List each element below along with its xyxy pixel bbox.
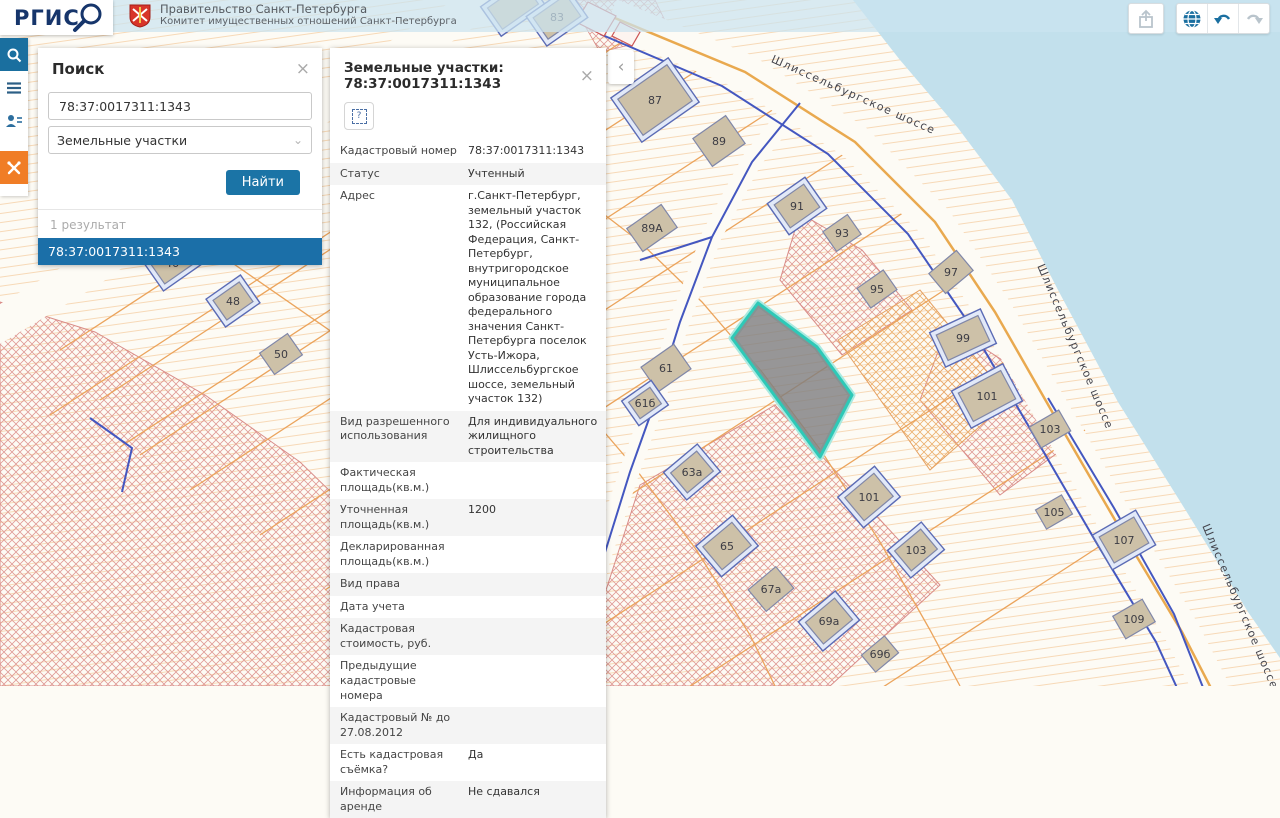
row-value: г.Санкт-Петербург, земельный участок 132… [464, 185, 606, 411]
row-value [464, 707, 606, 744]
globe-button[interactable] [1177, 4, 1207, 33]
building-number: 69а [819, 615, 840, 628]
results-count: 1 результат [38, 209, 322, 238]
panel-collapse-button[interactable]: ‹ [608, 50, 634, 84]
table-row: Информация об арендеНе сдавался [330, 781, 606, 818]
building-number: 103 [906, 544, 927, 557]
building-number: 63а [682, 466, 703, 479]
building-number: 95 [870, 283, 884, 296]
row-label: Кадастровая стоимость, руб. [330, 618, 464, 655]
table-row: Предыдущие кадастровые номера [330, 655, 606, 707]
row-label: Фактическая площадь(кв.м.) [330, 462, 464, 499]
row-value: 1200 [464, 499, 606, 536]
table-row: Кадастровая стоимость, руб. [330, 618, 606, 655]
row-label: Предыдущие кадастровые номера [330, 655, 464, 707]
row-value [464, 618, 606, 655]
row-label: Статус [330, 163, 464, 186]
building-number: 91 [790, 200, 804, 213]
table-row: Кадастровый № до 27.08.2012 [330, 707, 606, 744]
building-number: 107 [1114, 534, 1135, 547]
building-number: 61 [659, 362, 673, 375]
crossed-tools-icon [6, 160, 22, 176]
building-number: 50 [274, 348, 288, 361]
building-number: 93 [835, 227, 849, 240]
row-value [464, 462, 606, 499]
question-frame-icon: ? [352, 109, 367, 124]
find-button[interactable]: Найти [226, 170, 300, 195]
table-row: Адресг.Санкт-Петербург, земельный участо… [330, 185, 606, 411]
row-value [464, 573, 606, 596]
parcel-info-close-icon[interactable]: × [580, 68, 594, 85]
export-icon [1136, 8, 1156, 30]
hamburger-icon [6, 81, 22, 95]
row-value: Учтенный [464, 163, 606, 186]
table-row: Фактическая площадь(кв.м.) [330, 462, 606, 499]
table-row: Кадастровый номер78:37:0017311:1343 [330, 140, 606, 163]
sidebar-item-menu[interactable] [0, 71, 28, 104]
parcel-info-title: Земельные участки: 78:37:0017311:1343 [344, 60, 580, 92]
sidebar-item-search[interactable] [0, 38, 28, 71]
table-row: Вид разрешенного использованияДля индиви… [330, 411, 606, 463]
building-number: 109 [1124, 613, 1145, 626]
building-number: 89А [641, 222, 663, 235]
redo-button[interactable] [1238, 4, 1269, 33]
row-value [464, 536, 606, 573]
table-row: Вид права [330, 573, 606, 596]
spb-coat-of-arms-icon [128, 2, 152, 28]
building-number: 48 [226, 295, 240, 308]
building-number: 67а [761, 583, 782, 596]
building-number: 87 [648, 94, 662, 107]
user-list-icon [5, 113, 23, 129]
table-row: СтатусУчтенный [330, 163, 606, 186]
row-value: Не сдавался [464, 781, 606, 818]
building-number: 89 [712, 135, 726, 148]
map-tools-group [1176, 3, 1270, 34]
building-number: 101 [977, 390, 998, 403]
parcel-question-button[interactable]: ? [344, 102, 374, 130]
search-category-value: Земельные участки [57, 133, 187, 148]
row-label: Кадастровый номер [330, 140, 464, 163]
building-number: 103 [1040, 423, 1061, 436]
search-category-select[interactable]: Земельные участки ⌄ [48, 126, 312, 154]
search-panel: Поиск × Земельные участки ⌄ Найти 1 резу… [38, 48, 322, 265]
row-label: Кадастровый № до 27.08.2012 [330, 707, 464, 744]
building-number: 61б [635, 397, 656, 410]
search-panel-close-icon[interactable]: × [296, 61, 310, 78]
search-panel-title: Поиск [52, 60, 104, 78]
row-value: Для индивидуального жилищного строительс… [464, 411, 606, 463]
row-label: Вид права [330, 573, 464, 596]
redo-icon [1244, 10, 1264, 28]
row-label: Информация об аренде [330, 781, 464, 818]
row-value: 78:37:0017311:1343 [464, 140, 606, 163]
building-number: 101 [859, 491, 880, 504]
sidebar-item-rgis-tools[interactable] [0, 151, 28, 184]
search-input-wrap [48, 92, 312, 120]
search-input[interactable] [57, 98, 303, 115]
parcel-info-panel: Земельные участки: 78:37:0017311:1343 × … [330, 48, 606, 818]
row-label: Уточненная площадь(кв.м.) [330, 499, 464, 536]
row-label: Вид разрешенного использования [330, 411, 464, 463]
table-row: Уточненная площадь(кв.м.)1200 [330, 499, 606, 536]
magnifier-logo-icon [72, 1, 106, 35]
export-button[interactable] [1128, 3, 1164, 34]
search-icon [6, 47, 22, 63]
row-value [464, 596, 606, 619]
row-label: Декларированная площадь(кв.м.) [330, 536, 464, 573]
rgis-logo[interactable]: РГИС [0, 0, 113, 35]
table-row: Есть кадастровая съёмка?Да [330, 744, 606, 781]
building-number: 105 [1044, 506, 1065, 519]
globe-icon [1182, 9, 1202, 29]
row-value [464, 655, 606, 707]
gov-line2: Комитет имущественных отношений Санкт-Пе… [160, 16, 457, 29]
row-label: Адрес [330, 185, 464, 411]
row-label: Дата учета [330, 596, 464, 619]
table-row: Декларированная площадь(кв.м.) [330, 536, 606, 573]
building-number: 97 [944, 266, 958, 279]
sidebar [0, 38, 28, 196]
row-label: Есть кадастровая съёмка? [330, 744, 464, 781]
undo-button[interactable] [1207, 4, 1238, 33]
result-item-selected[interactable]: 78:37:0017311:1343 [38, 238, 322, 265]
building-number: 65 [720, 540, 734, 553]
parcel-attribute-table: Кадастровый номер78:37:0017311:1343Стату… [330, 140, 606, 818]
gov-line1: Правительство Санкт-Петербурга [160, 2, 457, 16]
rgis-logo-text: РГИС [14, 6, 80, 30]
sidebar-item-user-list[interactable] [0, 104, 28, 137]
undo-icon [1213, 10, 1233, 28]
row-value: Да [464, 744, 606, 781]
building-number: 99 [956, 332, 970, 345]
chevron-down-icon: ⌄ [293, 133, 303, 147]
building-number: 69б [870, 648, 891, 661]
table-row: Дата учета [330, 596, 606, 619]
